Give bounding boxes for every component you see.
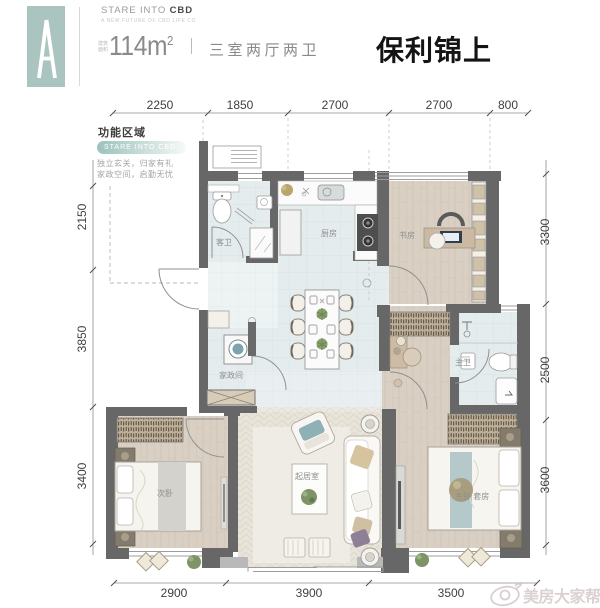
- svg-text:3400: 3400: [75, 462, 89, 489]
- svg-text:美房大家帮: 美房大家帮: [523, 587, 600, 606]
- svg-text:2900: 2900: [161, 586, 188, 600]
- svg-text:2150: 2150: [75, 203, 89, 230]
- svg-text:主卧 套房: 主卧 套房: [455, 491, 489, 501]
- svg-text:厨房: 厨房: [321, 228, 337, 238]
- svg-text:起居室: 起居室: [295, 471, 319, 481]
- svg-text:800: 800: [498, 98, 518, 112]
- svg-text:2700: 2700: [322, 98, 349, 112]
- svg-text:家政间: 家政间: [219, 370, 243, 380]
- svg-text:主卫: 主卫: [455, 357, 471, 367]
- svg-text:1850: 1850: [227, 98, 254, 112]
- svg-text:3300: 3300: [538, 218, 552, 245]
- svg-text:客卫: 客卫: [216, 237, 232, 247]
- svg-text:3600: 3600: [538, 466, 552, 493]
- svg-text:2500: 2500: [538, 356, 552, 383]
- svg-text:3900: 3900: [296, 586, 323, 600]
- svg-text:3500: 3500: [438, 586, 465, 600]
- svg-text:次卧: 次卧: [157, 488, 173, 498]
- svg-text:2700: 2700: [426, 98, 453, 112]
- svg-text:书房: 书房: [399, 230, 415, 240]
- svg-text:3850: 3850: [75, 325, 89, 352]
- svg-text:2250: 2250: [147, 98, 174, 112]
